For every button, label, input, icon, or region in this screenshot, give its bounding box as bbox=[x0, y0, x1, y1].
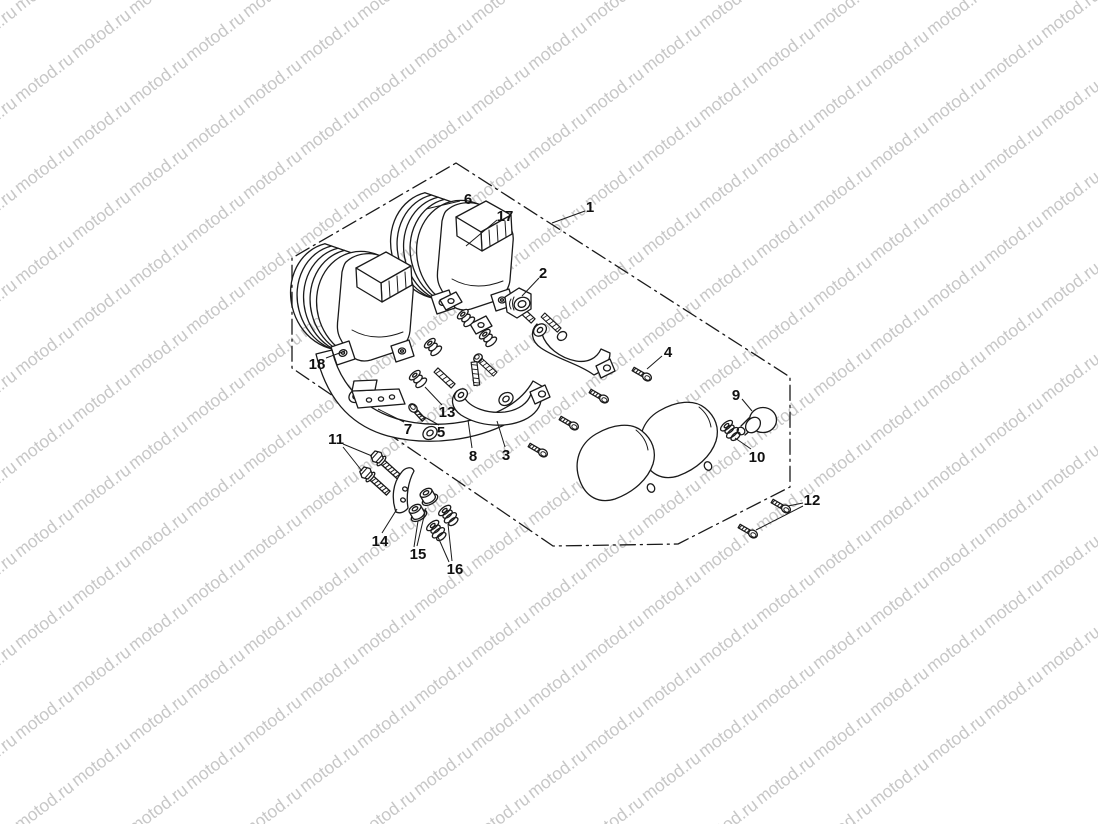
part-label-13: 13 bbox=[439, 404, 456, 421]
watermark-text: motod.ru bbox=[466, 152, 533, 210]
watermark-text: motod.ru bbox=[979, 120, 1046, 178]
watermark-text: motod.ru bbox=[580, 701, 647, 759]
watermark-text: motod.ru bbox=[238, 328, 305, 386]
watermark-text: motod.ru bbox=[124, 507, 191, 565]
watermark-text: motod.ru bbox=[637, 748, 704, 806]
leader-line-16 bbox=[448, 524, 452, 561]
watermark-text: motod.ru bbox=[694, 249, 761, 307]
watermark-text: motod.ru bbox=[67, 187, 134, 245]
watermark-text: motod.ru bbox=[922, 346, 989, 404]
watermark-text: motod.ru bbox=[466, 789, 533, 824]
watermark-text: motod.ru bbox=[238, 510, 305, 568]
watermark-text: motod.ru bbox=[523, 17, 590, 75]
watermark-text: motod.ru bbox=[238, 692, 305, 750]
watermark-text: motod.ru bbox=[751, 114, 818, 172]
watermark-text: motod.ru bbox=[694, 795, 761, 824]
watermark-text: motod.ru bbox=[10, 322, 77, 380]
part-label-9: 9 bbox=[732, 387, 740, 404]
part-label-17: 17 bbox=[497, 208, 514, 225]
parts-diagram-page: motod.rumotod.rumotod.rumotod.rumotod.ru… bbox=[0, 0, 1098, 824]
watermark-text: motod.ru bbox=[808, 707, 875, 765]
watermark-text: motod.ru bbox=[808, 161, 875, 219]
leader-line-9 bbox=[742, 399, 752, 411]
watermark-text: motod.ru bbox=[181, 554, 248, 612]
watermark-text: motod.ru bbox=[694, 613, 761, 671]
watermark-text: motod.ru bbox=[979, 211, 1046, 269]
watermark-text: motod.ru bbox=[466, 0, 533, 27]
watermark-text: motod.ru bbox=[637, 111, 704, 169]
watermark-text: motod.ru bbox=[637, 20, 704, 78]
watermark-text: motod.ru bbox=[409, 651, 476, 709]
watermark-text: motod.ru bbox=[466, 698, 533, 756]
watermark-text: motod.ru bbox=[580, 610, 647, 668]
watermark-text: motod.ru bbox=[808, 70, 875, 128]
watermark-text: motod.ru bbox=[979, 484, 1046, 542]
part-label-16: 16 bbox=[447, 561, 464, 578]
watermark-text: motod.ru bbox=[1036, 349, 1098, 407]
watermark-text: motod.ru bbox=[1036, 167, 1098, 225]
watermark-text: motod.ru bbox=[10, 0, 77, 15]
watermark-text: motod.ru bbox=[523, 563, 590, 621]
watermark-text: motod.ru bbox=[523, 654, 590, 712]
watermark-text: motod.ru bbox=[751, 660, 818, 718]
watermark-text: motod.ru bbox=[637, 657, 704, 715]
watermark-text: motod.ru bbox=[865, 663, 932, 721]
watermark-text: motod.ru bbox=[124, 416, 191, 474]
watermark-text: motod.ru bbox=[751, 205, 818, 263]
watermark-text: motod.ru bbox=[238, 419, 305, 477]
part-label-5: 5 bbox=[437, 424, 445, 441]
watermark-text: motod.ru bbox=[922, 528, 989, 586]
watermark-text: motod.ru bbox=[10, 49, 77, 107]
watermark-text: motod.ru bbox=[295, 11, 362, 69]
watermark-text: motod.ru bbox=[67, 460, 134, 518]
watermark-text: motod.ru bbox=[580, 519, 647, 577]
watermark-text: motod.ru bbox=[865, 390, 932, 448]
watermark-text: motod.ru bbox=[238, 237, 305, 295]
watermark-text: motod.ru bbox=[124, 325, 191, 383]
watermark-text: motod.ru bbox=[922, 710, 989, 768]
watermark-text: motod.ru bbox=[409, 742, 476, 800]
watermark-text: motod.ru bbox=[865, 754, 932, 812]
watermark-text: motod.ru bbox=[352, 695, 419, 753]
part-label-4: 4 bbox=[664, 344, 673, 361]
part-label-3: 3 bbox=[502, 447, 510, 464]
part-label-1: 1 bbox=[586, 199, 594, 216]
watermark-text: motod.ru bbox=[10, 231, 77, 289]
watermark-text: motod.ru bbox=[637, 566, 704, 624]
watermark-text: motod.ru bbox=[238, 55, 305, 113]
watermark-text: motod.ru bbox=[238, 146, 305, 204]
watermark-text: motod.ru bbox=[580, 792, 647, 824]
watermark-text: motod.ru bbox=[10, 504, 77, 562]
watermark-text: motod.ru bbox=[922, 164, 989, 222]
watermark-text: motod.ru bbox=[865, 572, 932, 630]
watermark-text: motod.ru bbox=[979, 575, 1046, 633]
watermark-text: motod.ru bbox=[1036, 0, 1098, 42]
watermark-text: motod.ru bbox=[580, 246, 647, 304]
watermark-text: motod.ru bbox=[124, 52, 191, 110]
part-label-11: 11 bbox=[328, 431, 344, 448]
watermark-text: motod.ru bbox=[10, 413, 77, 471]
watermark-text: motod.ru bbox=[865, 117, 932, 175]
watermark-text: motod.ru bbox=[466, 516, 533, 574]
watermark-text: motod.ru bbox=[181, 190, 248, 248]
part-label-7: 7 bbox=[404, 421, 412, 438]
watermark-text: motod.ru bbox=[808, 252, 875, 310]
watermark-text: motod.ru bbox=[466, 607, 533, 665]
watermark-text: motod.ru bbox=[466, 61, 533, 119]
watermark-text: motod.ru bbox=[751, 569, 818, 627]
watermark-text: motod.ru bbox=[67, 551, 134, 609]
watermark-text: motod.ru bbox=[409, 105, 476, 163]
part-label-10: 10 bbox=[749, 449, 766, 466]
watermark-text: motod.ru bbox=[865, 26, 932, 84]
watermark-text: motod.ru bbox=[295, 193, 362, 251]
leader-line-4 bbox=[647, 356, 662, 369]
watermark-text: motod.ru bbox=[124, 0, 191, 18]
watermark-text: motod.ru bbox=[808, 616, 875, 674]
watermark-text: motod.ru bbox=[124, 234, 191, 292]
watermark-text: motod.ru bbox=[67, 733, 134, 791]
watermark-text: motod.ru bbox=[67, 369, 134, 427]
leader-line-16 bbox=[438, 537, 449, 562]
watermark-text: motod.ru bbox=[67, 642, 134, 700]
part-label-14: 14 bbox=[372, 533, 389, 550]
watermark-text: motod.ru bbox=[922, 0, 989, 39]
watermark-text: motod.ru bbox=[67, 96, 134, 154]
watermark-text: motod.ru bbox=[979, 302, 1046, 360]
watermark-text: motod.ru bbox=[409, 560, 476, 618]
callouts-layer: 123456789101112131415161718 bbox=[309, 191, 821, 578]
watermark-text: motod.ru bbox=[694, 67, 761, 125]
watermark-text: motod.ru bbox=[979, 666, 1046, 724]
part-4-screw bbox=[631, 366, 653, 383]
watermark-text: motod.ru bbox=[751, 23, 818, 81]
watermark-text: motod.ru bbox=[124, 598, 191, 656]
watermark-text: motod.ru bbox=[808, 525, 875, 583]
watermark-text: motod.ru bbox=[295, 466, 362, 524]
watermark-text: motod.ru bbox=[238, 783, 305, 824]
part-label-8: 8 bbox=[469, 448, 477, 465]
watermark-text: motod.ru bbox=[523, 745, 590, 803]
exploded-parts-diagram: motod.rumotod.rumotod.rumotod.rumotod.ru… bbox=[0, 0, 1098, 824]
watermark-text: motod.ru bbox=[1036, 258, 1098, 316]
watermark-text: motod.ru bbox=[67, 5, 134, 63]
watermark-text: motod.ru bbox=[808, 343, 875, 401]
watermark-text: motod.ru bbox=[694, 158, 761, 216]
watermark-text: motod.ru bbox=[580, 64, 647, 122]
watermark-text: motod.ru bbox=[352, 786, 419, 824]
watermark-text: motod.ru bbox=[808, 434, 875, 492]
watermark-text: motod.ru bbox=[865, 481, 932, 539]
watermark-text: motod.ru bbox=[10, 686, 77, 744]
watermark-text: motod.ru bbox=[1036, 440, 1098, 498]
watermark-text: motod.ru bbox=[808, 0, 875, 36]
watermark-text: motod.ru bbox=[181, 645, 248, 703]
watermark-text: motod.ru bbox=[295, 102, 362, 160]
watermark-text: motod.ru bbox=[181, 99, 248, 157]
watermark-text: motod.ru bbox=[580, 0, 647, 30]
watermark-text: motod.ru bbox=[181, 736, 248, 794]
part-label-15: 15 bbox=[410, 546, 427, 563]
watermark-text: motod.ru bbox=[10, 777, 77, 824]
watermark-text: motod.ru bbox=[10, 140, 77, 198]
motod-ru-watermark-layer: motod.rumotod.rumotod.rumotod.rumotod.ru… bbox=[0, 0, 1098, 824]
watermark-text: motod.ru bbox=[124, 689, 191, 747]
watermark-text: motod.ru bbox=[1036, 76, 1098, 134]
watermark-text: motod.ru bbox=[10, 595, 77, 653]
watermark-text: motod.ru bbox=[124, 780, 191, 824]
watermark-text: motod.ru bbox=[238, 0, 305, 21]
watermark-text: motod.ru bbox=[352, 0, 419, 24]
watermark-text: motod.ru bbox=[181, 281, 248, 339]
part-label-2: 2 bbox=[539, 265, 547, 282]
watermark-text: motod.ru bbox=[295, 739, 362, 797]
part-7-bracket-plate bbox=[352, 380, 405, 408]
watermark-text: motod.ru bbox=[751, 296, 818, 354]
watermark-text: motod.ru bbox=[124, 143, 191, 201]
watermark-text: motod.ru bbox=[865, 299, 932, 357]
watermark-text: motod.ru bbox=[523, 108, 590, 166]
watermark-text: motod.ru bbox=[295, 648, 362, 706]
watermark-text: motod.ru bbox=[352, 604, 419, 662]
watermark-text: motod.ru bbox=[295, 557, 362, 615]
part-label-6: 6 bbox=[464, 191, 472, 208]
watermark-text: motod.ru bbox=[979, 29, 1046, 87]
watermark-text: motod.ru bbox=[865, 208, 932, 266]
watermark-text: motod.ru bbox=[67, 278, 134, 336]
watermark-text: motod.ru bbox=[637, 202, 704, 260]
watermark-text: motod.ru bbox=[922, 437, 989, 495]
watermark-text: motod.ru bbox=[181, 463, 248, 521]
watermark-text: motod.ru bbox=[238, 601, 305, 659]
part-label-18: 18 bbox=[309, 356, 326, 373]
watermark-text: motod.ru bbox=[922, 73, 989, 131]
watermark-text: motod.ru bbox=[922, 255, 989, 313]
watermark-text: motod.ru bbox=[637, 475, 704, 533]
watermark-text: motod.ru bbox=[751, 751, 818, 809]
watermark-text: motod.ru bbox=[181, 8, 248, 66]
watermark-text: motod.ru bbox=[694, 704, 761, 762]
leader-line-11 bbox=[343, 444, 372, 456]
watermark-text: motod.ru bbox=[1036, 531, 1098, 589]
watermark-text: motod.ru bbox=[979, 393, 1046, 451]
watermark-text: motod.ru bbox=[352, 58, 419, 116]
watermark-text: motod.ru bbox=[1036, 622, 1098, 680]
watermark-text: motod.ru bbox=[808, 798, 875, 824]
part-label-12: 12 bbox=[804, 492, 821, 509]
watermark-text: motod.ru bbox=[694, 340, 761, 398]
watermark-text: motod.ru bbox=[694, 0, 761, 33]
watermark-text: motod.ru bbox=[352, 149, 419, 207]
watermark-text: motod.ru bbox=[181, 372, 248, 430]
watermark-text: motod.ru bbox=[922, 619, 989, 677]
watermark-text: motod.ru bbox=[409, 14, 476, 72]
